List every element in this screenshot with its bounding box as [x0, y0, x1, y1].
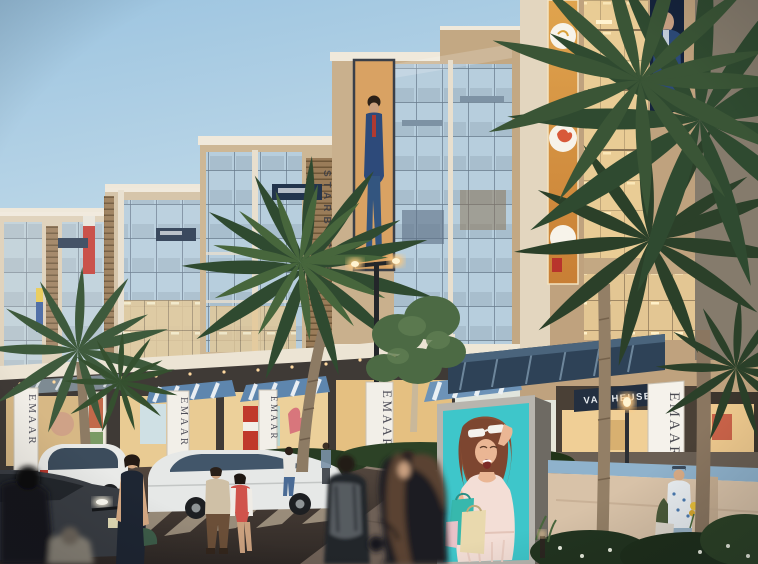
vignette [0, 0, 758, 564]
render-image: STARBUCKS [0, 0, 758, 564]
